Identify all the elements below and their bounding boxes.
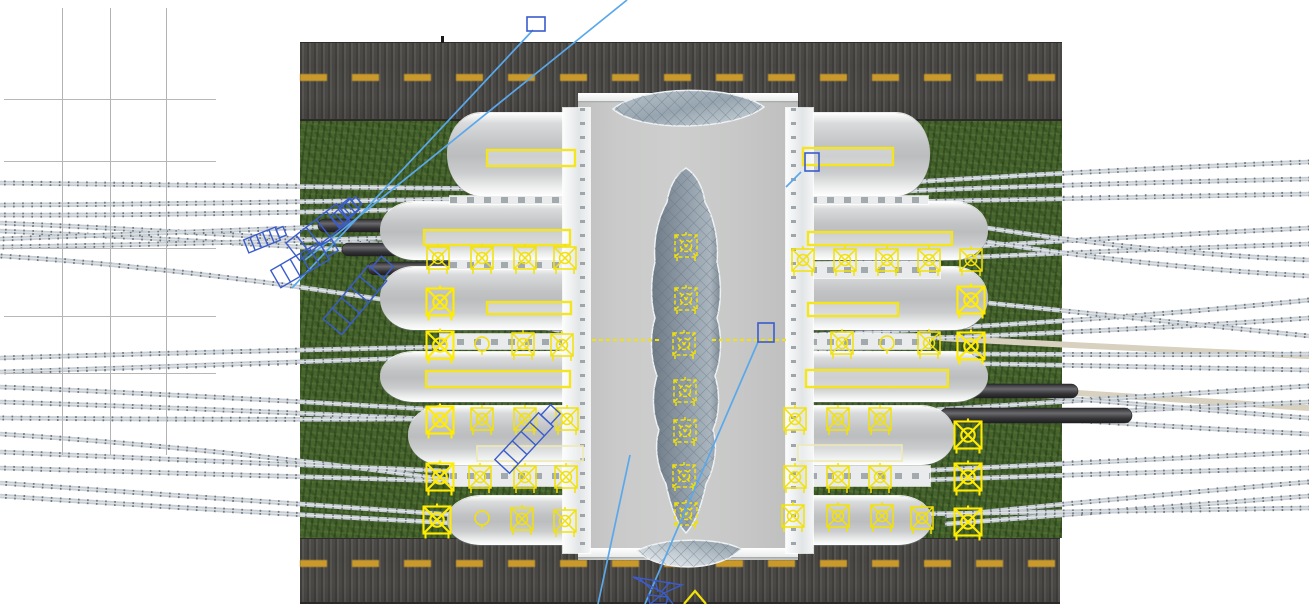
station-main-hall-roof[interactable] — [578, 97, 798, 560]
column-ticks — [791, 108, 796, 553]
roof-seam — [4, 161, 216, 162]
platform-canopy-left[interactable] — [380, 267, 581, 330]
platform-edge-strip — [793, 466, 930, 486]
colonnade-band[interactable] — [563, 108, 590, 553]
platform-canopy-right[interactable] — [798, 496, 932, 545]
roof-seam — [166, 8, 167, 455]
platform-canopy-right[interactable] — [798, 352, 988, 402]
roof-seam — [4, 373, 216, 374]
roof-edge-trim — [578, 548, 798, 557]
platform-edge-strip — [440, 334, 583, 349]
platform-canopy-left[interactable] — [380, 352, 581, 402]
roof-edge-trim — [578, 93, 798, 101]
column-ticks — [580, 108, 585, 553]
platform-edge-strip — [793, 262, 940, 278]
roof-seam — [4, 248, 216, 249]
station-structure-layer — [0, 0, 1309, 604]
roof-seam — [4, 99, 216, 100]
platform-canopy-right[interactable] — [798, 406, 955, 465]
roof-seam — [62, 8, 63, 455]
platform-canopy-right[interactable] — [798, 202, 988, 260]
platform-canopy-right[interactable] — [798, 113, 930, 196]
3d-viewport[interactable] — [0, 0, 1309, 604]
roof-seam — [110, 8, 111, 455]
platform-edge-strip — [793, 196, 928, 204]
platform-canopy-left[interactable] — [408, 406, 581, 465]
platform-canopy-left[interactable] — [447, 113, 581, 196]
platform-edge-strip — [793, 334, 930, 349]
platform-canopy-left[interactable] — [447, 496, 581, 545]
platform-canopy-left[interactable] — [380, 202, 581, 260]
colonnade-band[interactable] — [786, 108, 813, 553]
roof-seam — [4, 316, 216, 317]
